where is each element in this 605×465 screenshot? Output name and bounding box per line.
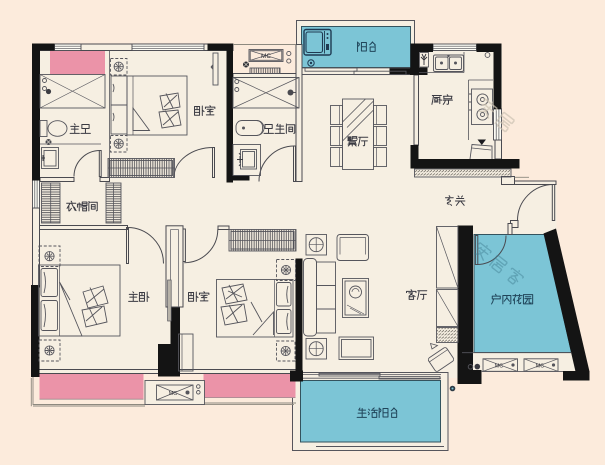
svg-text:MC: MC xyxy=(169,391,178,397)
svg-text:MC: MC xyxy=(495,364,504,370)
svg-text:MC: MC xyxy=(536,364,545,370)
svg-text:MC: MC xyxy=(261,53,271,60)
